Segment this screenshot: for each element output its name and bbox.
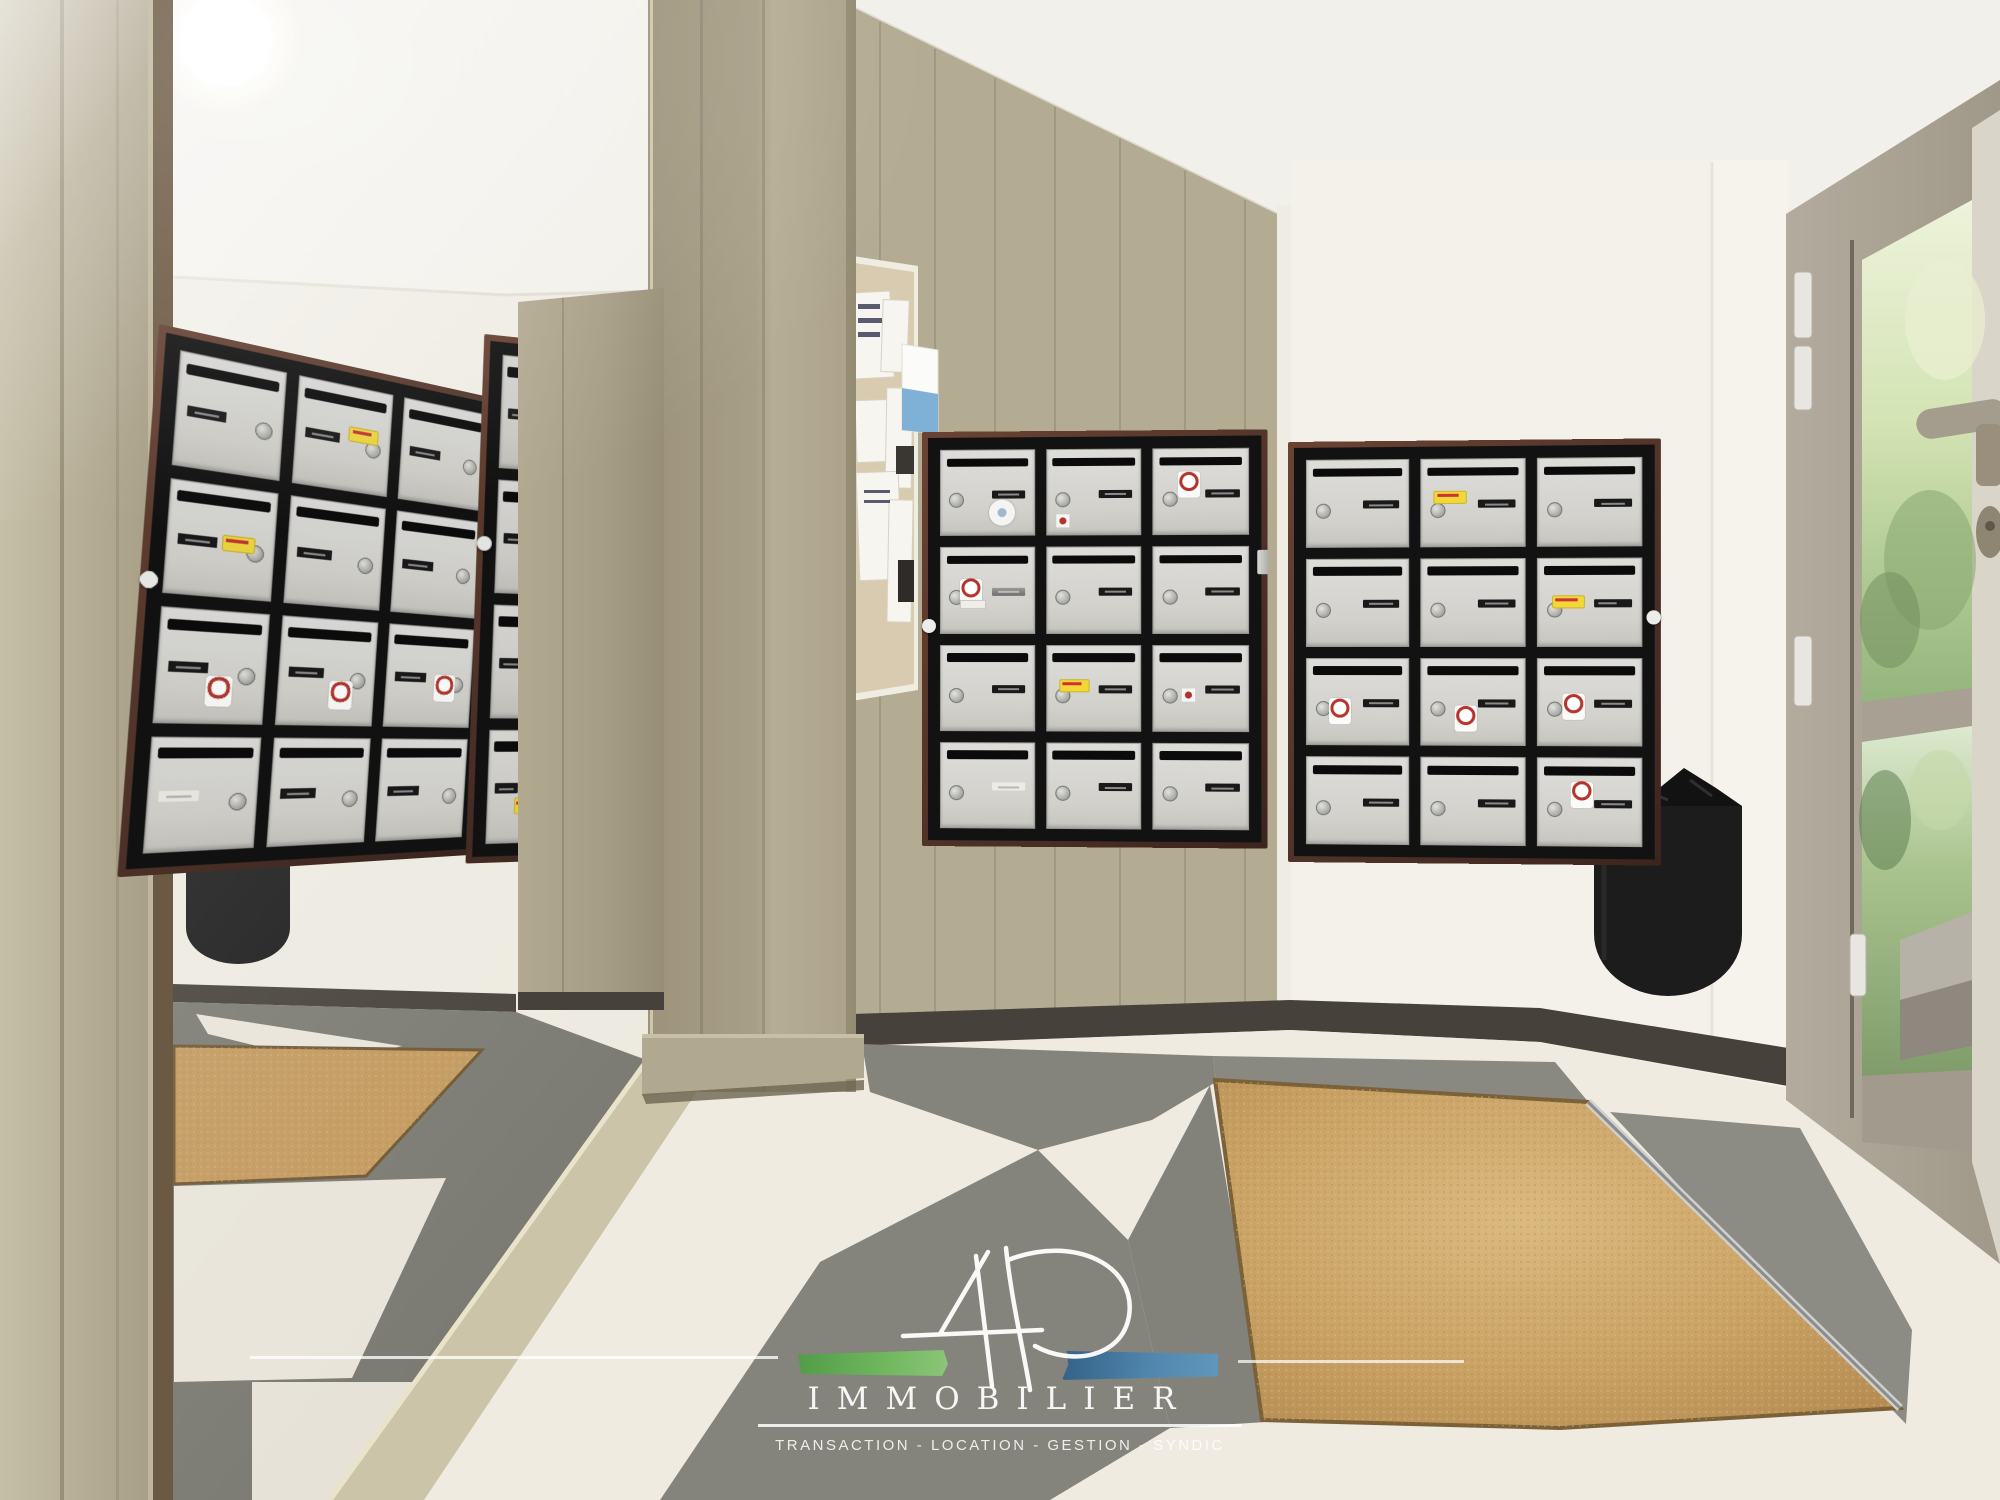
door-handle-plate bbox=[1976, 424, 2000, 486]
name-plate bbox=[1098, 587, 1132, 595]
bank-grid bbox=[1306, 457, 1642, 847]
small-red-sticker bbox=[1182, 688, 1195, 701]
mail-slot bbox=[1053, 751, 1135, 760]
name-plate bbox=[297, 547, 332, 561]
stop-pub-sticker bbox=[433, 675, 455, 703]
mail-slot bbox=[168, 618, 263, 635]
name-plate bbox=[1206, 784, 1240, 792]
bank-frame bbox=[126, 333, 499, 870]
mail-slot bbox=[947, 750, 1029, 759]
mailbox bbox=[375, 738, 468, 842]
mail-slot bbox=[1159, 653, 1242, 662]
mail-slot bbox=[1313, 567, 1402, 576]
frame-knob bbox=[1646, 610, 1660, 624]
name-plate bbox=[992, 490, 1025, 498]
lock-icon bbox=[237, 668, 256, 686]
mailbox bbox=[1153, 743, 1249, 831]
bank-grid bbox=[143, 350, 488, 854]
dark-notice bbox=[896, 446, 914, 474]
keyhole-icon bbox=[1985, 521, 1995, 531]
mailbox bbox=[172, 350, 287, 480]
bank-frame bbox=[1294, 445, 1655, 860]
name-plate bbox=[1478, 799, 1515, 807]
mailbox bbox=[1153, 448, 1249, 536]
lock-icon bbox=[1162, 688, 1177, 703]
name-plate bbox=[158, 790, 199, 802]
mail-slot bbox=[280, 748, 364, 759]
lock-icon bbox=[949, 785, 964, 800]
mailbox bbox=[1537, 557, 1643, 646]
name-plate bbox=[992, 685, 1025, 693]
lock-icon bbox=[1055, 492, 1070, 507]
hinge-icon bbox=[1794, 346, 1812, 410]
name-plate bbox=[1206, 489, 1240, 497]
mailbox bbox=[275, 615, 379, 726]
mail-slot bbox=[1159, 555, 1242, 564]
lock-icon bbox=[442, 788, 457, 804]
name-plate bbox=[1098, 489, 1132, 497]
entrance-hall-photo: { "scene": { "type": "photograph", "sett… bbox=[0, 0, 2000, 1500]
name-plate bbox=[395, 672, 426, 683]
mail-slot bbox=[296, 506, 379, 527]
lock-icon bbox=[1316, 603, 1331, 618]
mail-slot bbox=[1313, 468, 1402, 477]
hinge-icon bbox=[1850, 934, 1866, 996]
frame-latch bbox=[1257, 549, 1269, 573]
lock-icon bbox=[456, 568, 471, 585]
name-plate bbox=[1206, 686, 1240, 694]
mailbox bbox=[940, 742, 1035, 829]
mirror-reflection-mailbox-bank bbox=[117, 324, 505, 877]
name-plate bbox=[1363, 798, 1400, 806]
lock-icon bbox=[357, 557, 373, 575]
mailbox bbox=[1421, 558, 1526, 647]
mailbox-bank-center bbox=[922, 429, 1268, 848]
mail-slot bbox=[177, 490, 271, 513]
lock-icon bbox=[1431, 602, 1446, 617]
lock-icon bbox=[949, 493, 964, 508]
name-plate bbox=[1098, 783, 1132, 791]
bank-grid bbox=[940, 448, 1249, 831]
mail-slot bbox=[394, 634, 468, 649]
lock-icon bbox=[1431, 503, 1446, 518]
name-plate bbox=[1478, 600, 1515, 608]
mailbox bbox=[153, 606, 271, 724]
mail-slot bbox=[186, 363, 279, 392]
mailbox bbox=[1306, 558, 1410, 646]
blue-poster bbox=[902, 344, 938, 434]
mail-slot bbox=[387, 748, 462, 758]
small-red-sticker bbox=[1056, 514, 1069, 527]
mailbox bbox=[940, 449, 1035, 536]
lock-icon bbox=[1431, 702, 1446, 717]
lock-icon bbox=[1547, 702, 1562, 717]
mailbox bbox=[940, 547, 1035, 634]
glass-entrance-door bbox=[1786, 80, 2000, 1264]
bank-wood-trim bbox=[117, 324, 505, 877]
frame-knob bbox=[139, 571, 158, 590]
mailbox bbox=[1153, 645, 1249, 732]
name-plate bbox=[1595, 599, 1632, 607]
mailbox bbox=[1306, 459, 1410, 548]
mail-slot bbox=[1428, 766, 1518, 775]
mail-slot bbox=[1159, 751, 1242, 760]
mailbox bbox=[1306, 658, 1410, 746]
mailbox bbox=[266, 737, 370, 847]
name-plate bbox=[305, 427, 340, 443]
mailbox bbox=[1046, 742, 1142, 829]
mail-slot bbox=[947, 556, 1029, 565]
stop-pub-sticker bbox=[204, 675, 233, 706]
mailbox bbox=[1421, 458, 1526, 547]
hinge-icon bbox=[1794, 272, 1812, 338]
frame-knob bbox=[922, 619, 936, 633]
mail-slot bbox=[1053, 653, 1135, 662]
name-plate bbox=[280, 788, 316, 799]
mail-slot bbox=[305, 387, 387, 414]
name-plate bbox=[1363, 600, 1400, 608]
name-plate bbox=[187, 406, 226, 423]
name-plate bbox=[992, 588, 1025, 596]
oui-pub-sticker bbox=[1434, 491, 1467, 504]
mailbox bbox=[1306, 756, 1410, 845]
name-plate bbox=[1363, 699, 1400, 707]
name-plate bbox=[402, 559, 433, 572]
mail-slot bbox=[1053, 555, 1135, 564]
name-plate bbox=[168, 661, 208, 673]
lock-icon bbox=[1162, 786, 1177, 801]
round-viewer-sticker bbox=[989, 499, 1015, 525]
door-bottom-rail bbox=[1862, 1070, 1972, 1152]
frame-knob bbox=[477, 536, 492, 551]
mail-slot bbox=[288, 626, 371, 642]
lock-icon bbox=[1316, 800, 1331, 815]
lock-icon bbox=[1431, 801, 1446, 816]
mail-slot bbox=[1428, 567, 1518, 576]
name-plate bbox=[409, 446, 440, 461]
lock-icon bbox=[1547, 802, 1562, 817]
white-label-sticker bbox=[959, 600, 985, 609]
oui-pub-sticker bbox=[1552, 595, 1585, 608]
mailbox bbox=[940, 645, 1035, 732]
name-plate bbox=[1478, 699, 1515, 707]
lock-icon bbox=[255, 421, 273, 441]
bank-wood-trim bbox=[922, 429, 1268, 848]
stop-pub-sticker bbox=[1329, 698, 1351, 724]
beige-column bbox=[642, 0, 864, 1104]
mail-slot bbox=[1544, 566, 1635, 575]
name-plate bbox=[1098, 685, 1132, 693]
mailbox bbox=[292, 375, 394, 496]
lock-icon bbox=[949, 688, 964, 703]
lock-icon bbox=[341, 790, 358, 807]
mail-slot bbox=[1159, 456, 1242, 465]
mailbox bbox=[1046, 547, 1142, 634]
oui-pub-sticker bbox=[349, 426, 379, 447]
stop-pub-sticker bbox=[1571, 781, 1594, 807]
reflected-column bbox=[518, 288, 664, 1010]
name-plate bbox=[1478, 500, 1515, 508]
mailbox bbox=[1537, 658, 1643, 747]
oui-pub-sticker bbox=[1059, 679, 1089, 692]
lock-icon bbox=[1055, 786, 1070, 801]
bank-frame bbox=[928, 435, 1261, 842]
mail-slot bbox=[1313, 666, 1402, 675]
name-plate bbox=[1595, 499, 1632, 508]
name-plate bbox=[387, 786, 419, 796]
mailbox bbox=[390, 510, 481, 619]
mail-slot bbox=[1313, 765, 1402, 774]
oui-pub-sticker bbox=[221, 535, 256, 555]
mailbox bbox=[398, 397, 488, 511]
bank-wood-trim bbox=[1288, 438, 1661, 865]
lock-icon bbox=[1316, 504, 1331, 519]
mailbox bbox=[1537, 757, 1643, 847]
stop-pub-sticker bbox=[328, 680, 353, 709]
mailbox bbox=[143, 736, 262, 854]
mail-slot bbox=[1053, 457, 1135, 466]
name-plate bbox=[1595, 699, 1632, 707]
name-plate bbox=[494, 783, 518, 794]
name-plate bbox=[1363, 501, 1400, 509]
mail-slot bbox=[1544, 666, 1635, 675]
mail-slot bbox=[947, 458, 1029, 467]
name-plate bbox=[177, 533, 217, 548]
mailbox bbox=[1046, 645, 1142, 732]
lock-icon bbox=[1055, 590, 1070, 605]
lock-icon bbox=[228, 792, 247, 810]
name-plate bbox=[1206, 587, 1240, 595]
mailbox bbox=[1153, 546, 1249, 633]
mail-slot bbox=[1428, 467, 1518, 476]
mail-slot bbox=[1428, 666, 1518, 675]
name-plate bbox=[1595, 800, 1632, 809]
mailbox bbox=[1421, 658, 1526, 747]
mailbox-bank-right bbox=[1288, 438, 1661, 865]
mail-slot bbox=[1544, 466, 1635, 475]
dark-notice bbox=[898, 560, 914, 602]
name-plate bbox=[288, 667, 323, 679]
mail-slot bbox=[158, 748, 254, 759]
mail-slot bbox=[1544, 766, 1635, 775]
mail-slot bbox=[402, 521, 475, 540]
mail-slot bbox=[409, 408, 482, 432]
lock-icon bbox=[1547, 502, 1562, 517]
mailbox bbox=[1421, 757, 1526, 846]
mailbox bbox=[283, 495, 386, 611]
lock-icon bbox=[1162, 492, 1177, 507]
hinge-icon bbox=[1794, 636, 1812, 706]
mailbox bbox=[383, 623, 475, 727]
stop-pub-sticker bbox=[1178, 471, 1200, 497]
mail-slot bbox=[947, 653, 1029, 661]
mailbox bbox=[1537, 457, 1643, 547]
mailbox bbox=[162, 477, 278, 601]
mailbox bbox=[1046, 448, 1142, 535]
lock-icon bbox=[1162, 590, 1177, 605]
lock-icon bbox=[463, 459, 478, 476]
stop-pub-sticker bbox=[1562, 693, 1584, 719]
stop-pub-sticker bbox=[1454, 705, 1476, 731]
name-plate bbox=[992, 783, 1025, 791]
